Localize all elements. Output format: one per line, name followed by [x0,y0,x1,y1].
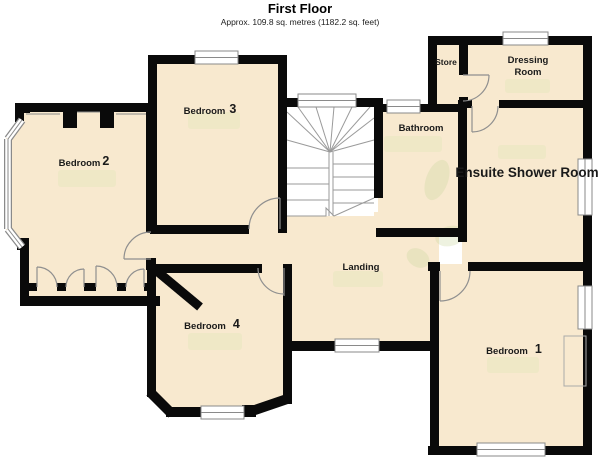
wall-segment [459,45,468,75]
store-dressing-floor [432,40,588,108]
bed-hint [487,357,539,373]
wardrobe-wall [84,283,96,291]
wall-segment [499,100,592,108]
dresser-hint [505,79,550,93]
bed-hint [188,333,242,350]
landing-hint [333,271,383,287]
wardrobe-wall [29,283,37,291]
wall-segment [148,55,157,233]
bedroom3-floor [152,59,283,231]
wall-segment [150,225,249,234]
ensuite-floor [462,104,588,266]
bed-hint [58,170,116,187]
floor-plan: First Floor Approx. 109.8 sq. metres (11… [0,0,600,462]
floor-plan-page: First Floor Approx. 109.8 sq. metres (11… [0,0,600,462]
bath-hint [384,136,442,152]
wall-segment [376,228,466,237]
wall-segment [147,264,156,397]
store-label: Store [435,57,457,67]
wall-segment [374,98,383,198]
wardrobe-wall [57,283,66,291]
wall-segment [63,107,77,128]
wall-segment [20,296,160,306]
page-subtitle: Approx. 109.8 sq. metres (1182.2 sq. fee… [221,17,380,27]
wall-segment [18,103,152,112]
wall-segment [278,55,287,233]
staircase [287,107,374,216]
ensuite-label: Ensuite Shower Room [455,165,598,180]
wall-segment [100,107,114,128]
page-title: First Floor [268,1,332,16]
wall-segment [428,36,437,108]
bathroom-label: Bathroom [399,123,444,134]
wardrobe-wall [117,283,126,291]
ensuite-hint [498,145,546,159]
wall-segment [166,407,204,417]
landing-label: Landing [343,262,380,273]
wall-segment [468,262,592,271]
dressing-room-label-line1: Dressing [508,55,549,66]
wall-segment [430,262,439,455]
wall-segment [583,36,592,455]
dressing-room-label-line2: Room [515,67,542,78]
wall-segment [150,264,262,273]
